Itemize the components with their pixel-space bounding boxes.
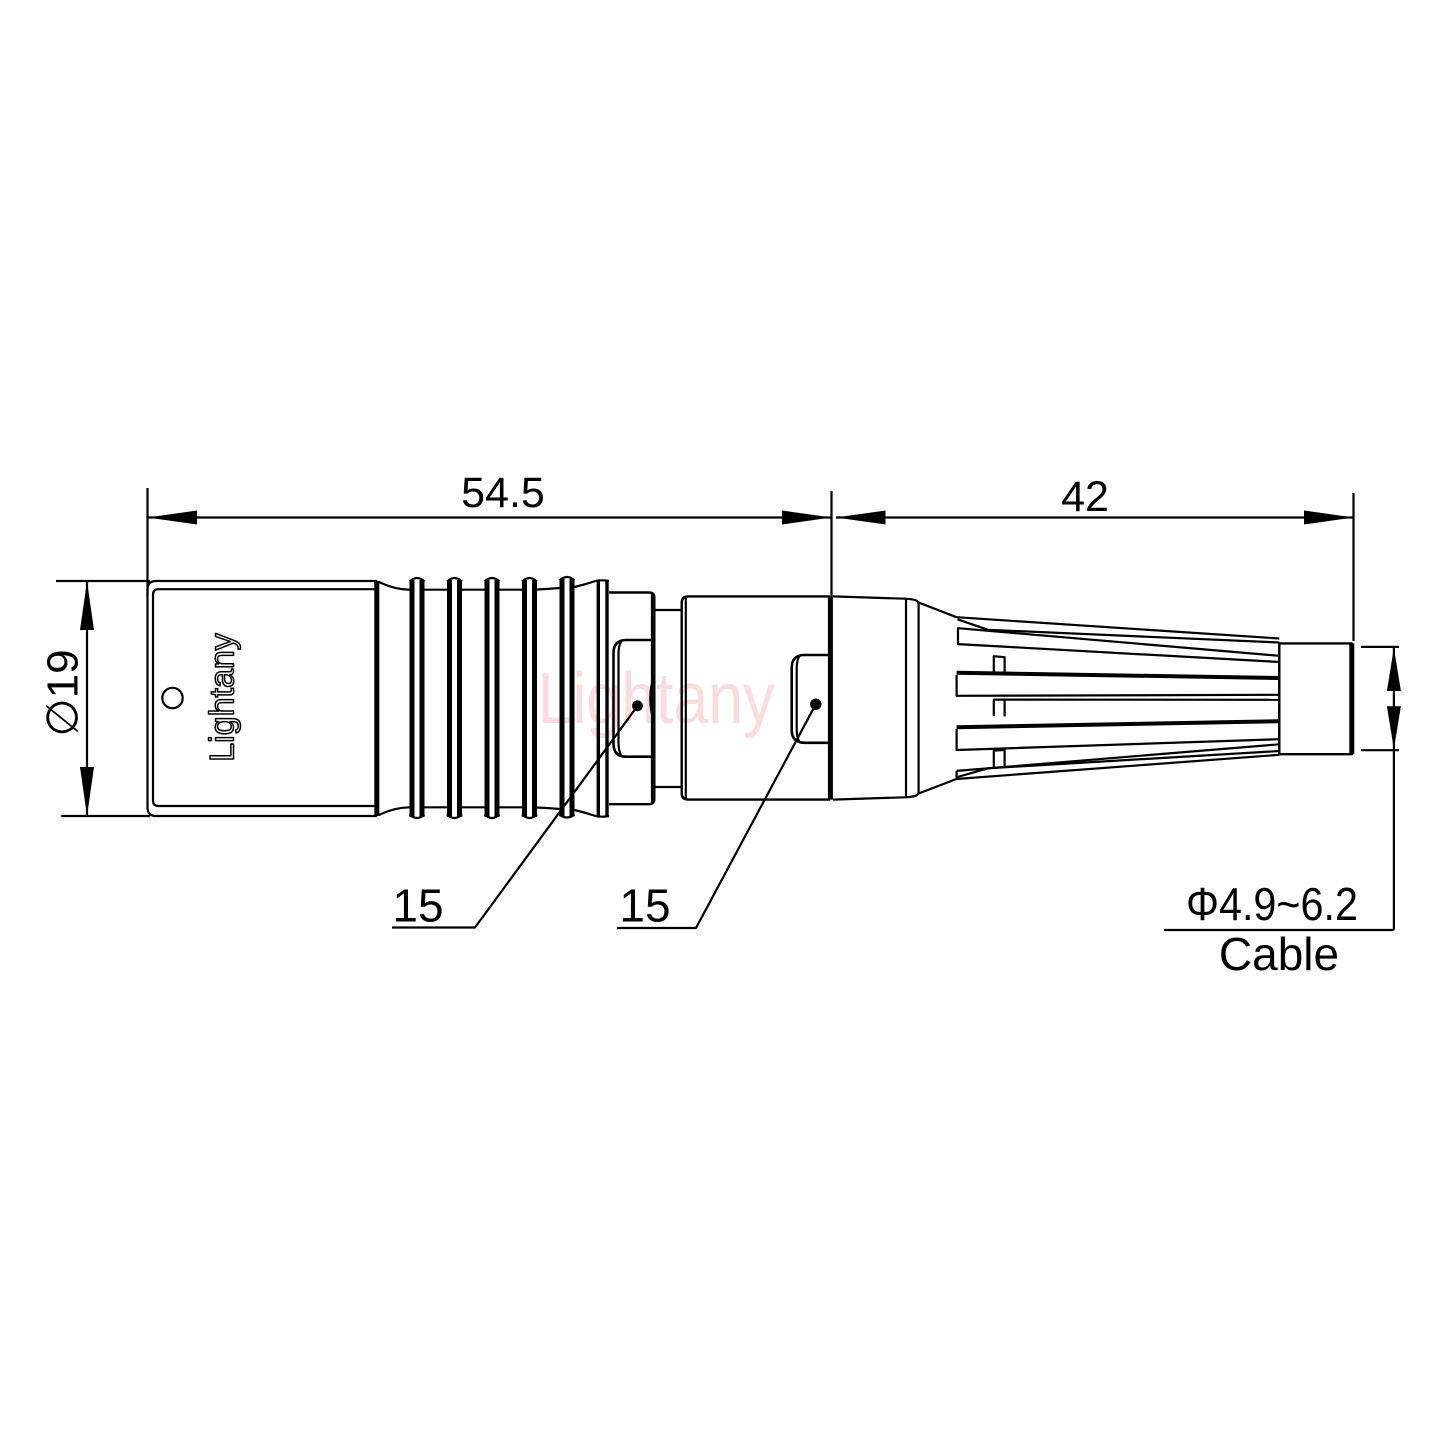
svg-text:15: 15 — [619, 880, 670, 932]
svg-text:Φ4.9~6.2: Φ4.9~6.2 — [1186, 878, 1358, 930]
svg-text:Cable: Cable — [1219, 928, 1339, 980]
svg-text:42: 42 — [1061, 473, 1109, 521]
svg-text:∅19: ∅19 — [39, 649, 88, 736]
svg-text:Lightany: Lightany — [204, 633, 242, 762]
svg-text:54.5: 54.5 — [461, 469, 545, 517]
svg-text:15: 15 — [392, 880, 443, 932]
svg-text:Lightany: Lightany — [538, 659, 775, 739]
